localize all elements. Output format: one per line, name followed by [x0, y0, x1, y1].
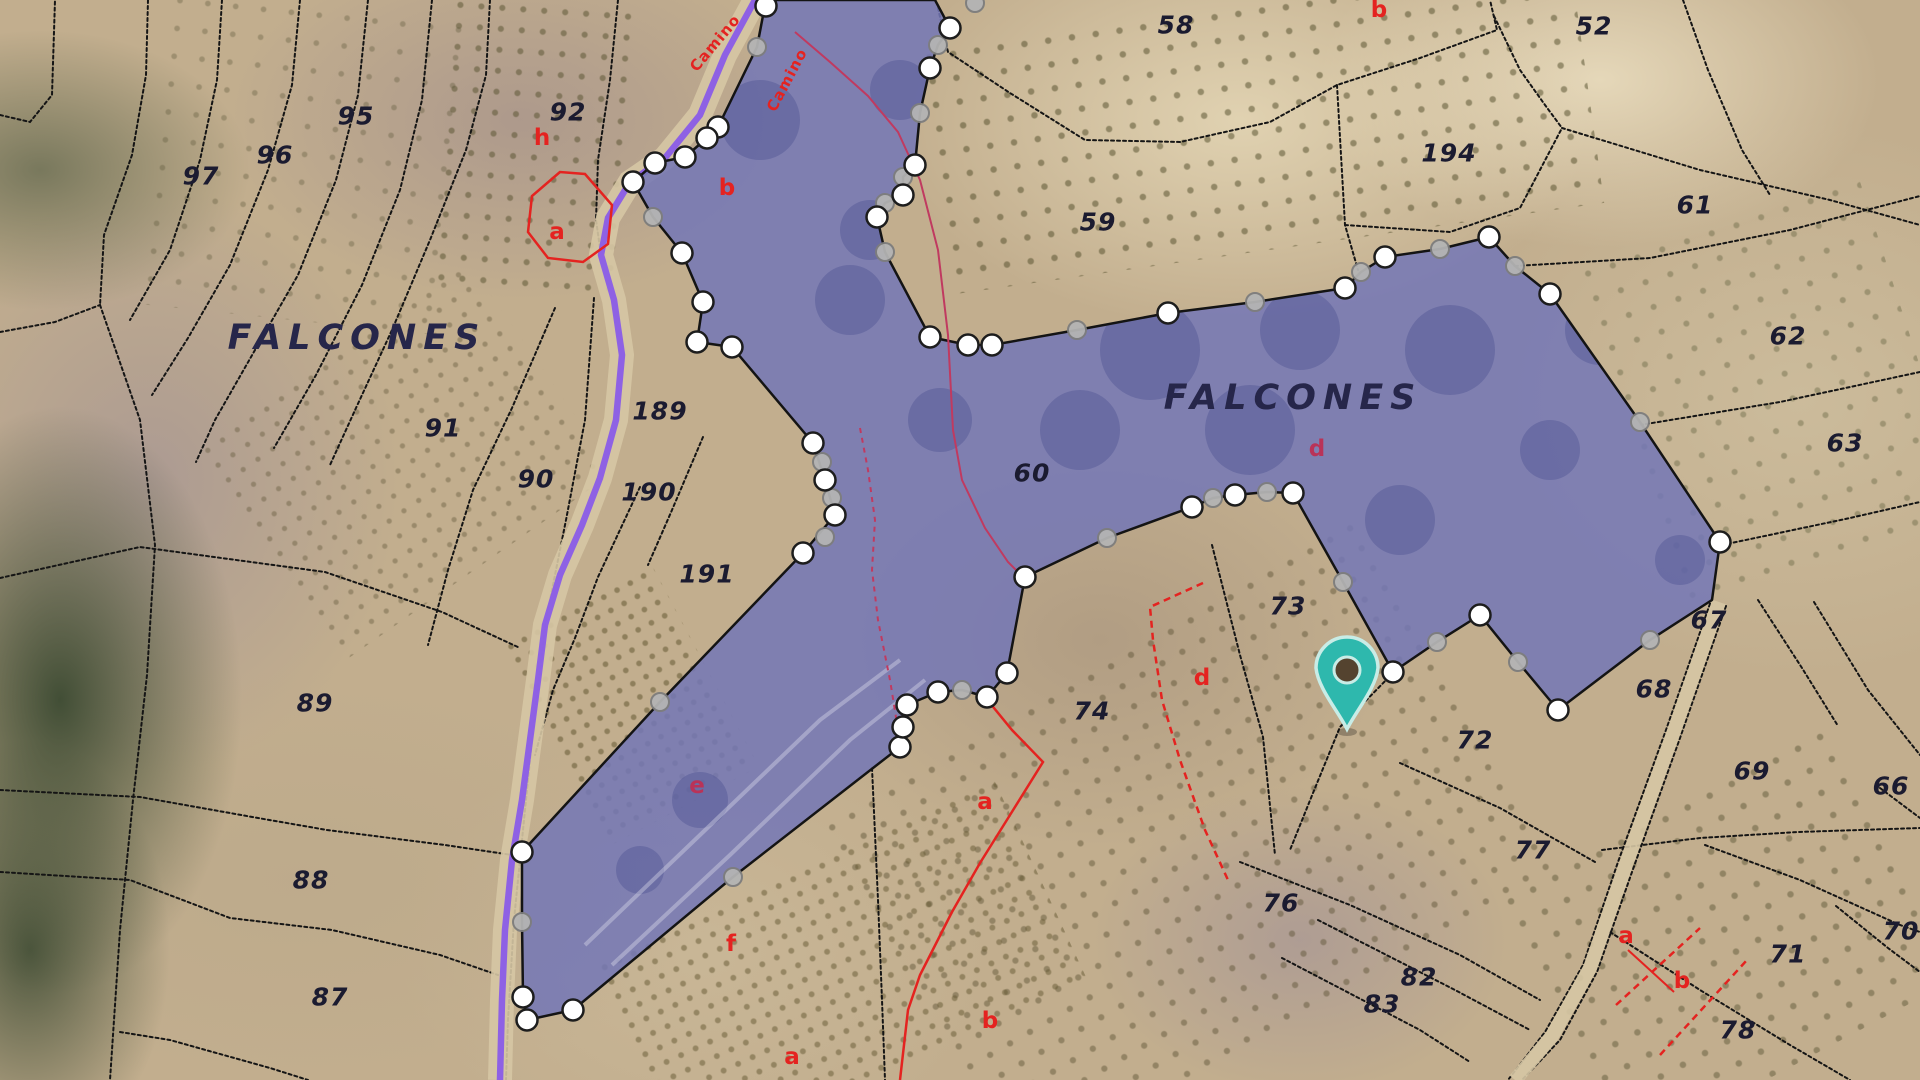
vertex-handle[interactable]	[1375, 247, 1396, 268]
vertex-handle[interactable]	[563, 1000, 584, 1021]
midpoint-handle[interactable]	[651, 693, 669, 711]
pin-hole	[1334, 657, 1360, 683]
vertex-handle[interactable]	[982, 335, 1003, 356]
midpoint-handle[interactable]	[1068, 321, 1086, 339]
vertex-handle[interactable]	[623, 172, 644, 193]
midpoint-handle[interactable]	[953, 681, 971, 699]
vertex-handle[interactable]	[905, 155, 926, 176]
map-viewer: FALCONESFALCONES979695925859521946162636…	[0, 0, 1920, 1080]
vertex-handle[interactable]	[893, 185, 914, 206]
vertex-handle[interactable]	[977, 687, 998, 708]
vertex-handle[interactable]	[1015, 567, 1036, 588]
vertex-handle[interactable]	[756, 0, 777, 17]
vertex-handle[interactable]	[940, 18, 961, 39]
vertex-handle[interactable]	[1283, 483, 1304, 504]
midpoint-handle[interactable]	[966, 0, 984, 12]
vertex-handle[interactable]	[920, 327, 941, 348]
midpoint-handle[interactable]	[513, 913, 531, 931]
vertex-handle[interactable]	[722, 337, 743, 358]
vertex-handle[interactable]	[1225, 485, 1246, 506]
midpoint-handle[interactable]	[813, 453, 831, 471]
vertex-handle[interactable]	[890, 737, 911, 758]
vertex-handle[interactable]	[697, 128, 718, 149]
midpoint-handle[interactable]	[1428, 633, 1446, 651]
vertex-handle[interactable]	[897, 695, 918, 716]
vertex-handle[interactable]	[815, 470, 836, 491]
midpoint-handle[interactable]	[748, 38, 766, 56]
midpoint-handle[interactable]	[1352, 263, 1370, 281]
vertex-handle[interactable]	[513, 987, 534, 1008]
midpoint-handle[interactable]	[1334, 573, 1352, 591]
vertex-handle[interactable]	[645, 153, 666, 174]
vertex-handle[interactable]	[1540, 284, 1561, 305]
vertex-handle[interactable]	[793, 543, 814, 564]
vertex-handle[interactable]	[803, 433, 824, 454]
vertex-handle[interactable]	[920, 58, 941, 79]
midpoint-handle[interactable]	[1641, 631, 1659, 649]
vertex-handle[interactable]	[1548, 700, 1569, 721]
midpoint-handle[interactable]	[1098, 529, 1116, 547]
vertex-handle[interactable]	[675, 147, 696, 168]
vertex-handle[interactable]	[1335, 278, 1356, 299]
midpoint-handle[interactable]	[1258, 483, 1276, 501]
vertex-handle[interactable]	[1182, 497, 1203, 518]
midpoint-handle[interactable]	[1509, 653, 1527, 671]
midpoint-handle[interactable]	[1506, 257, 1524, 275]
midpoint-handle[interactable]	[1204, 489, 1222, 507]
midpoint-handle[interactable]	[644, 208, 662, 226]
midpoint-handle[interactable]	[876, 243, 894, 261]
vertex-handle[interactable]	[1158, 303, 1179, 324]
midpoint-handle[interactable]	[929, 36, 947, 54]
midpoint-handle[interactable]	[911, 104, 929, 122]
vertex-handle[interactable]	[997, 663, 1018, 684]
midpoint-handle[interactable]	[1631, 413, 1649, 431]
location-pin-icon[interactable]	[1316, 637, 1378, 736]
vertex-handle[interactable]	[1710, 532, 1731, 553]
vertex-handle[interactable]	[928, 682, 949, 703]
vertex-handle[interactable]	[693, 292, 714, 313]
vertex-handle[interactable]	[825, 505, 846, 526]
vertex-handle[interactable]	[1383, 662, 1404, 683]
vertex-handle[interactable]	[958, 335, 979, 356]
vertex-handle[interactable]	[512, 842, 533, 863]
vertex-handle[interactable]	[672, 243, 693, 264]
midpoint-handle[interactable]	[816, 528, 834, 546]
midpoint-handle[interactable]	[1431, 240, 1449, 258]
map-markers-layer	[0, 0, 1920, 1080]
vertex-handle[interactable]	[687, 332, 708, 353]
vertex-handle[interactable]	[1470, 605, 1491, 626]
vertex-handle[interactable]	[867, 207, 888, 228]
midpoint-handle[interactable]	[724, 868, 742, 886]
midpoint-handle[interactable]	[1246, 293, 1264, 311]
vertex-handle[interactable]	[893, 717, 914, 738]
vertex-handle[interactable]	[517, 1010, 538, 1031]
vertex-handle[interactable]	[1479, 227, 1500, 248]
